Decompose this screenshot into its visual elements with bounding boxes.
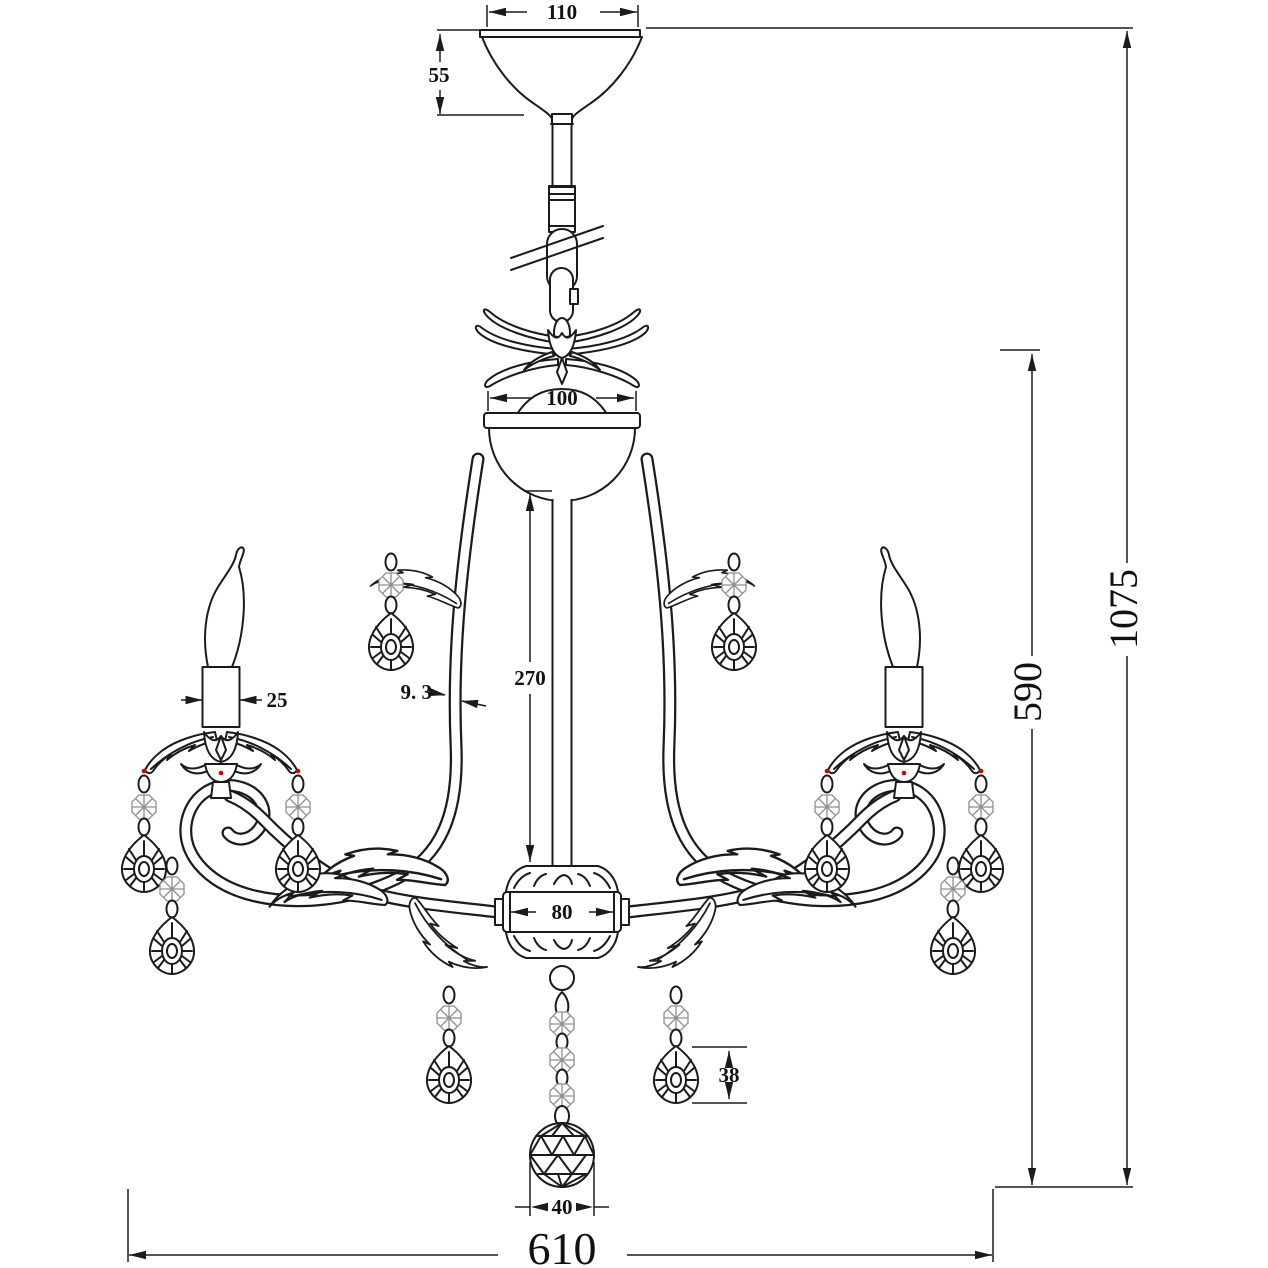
arm-assembly-right [628,459,1003,1103]
dim-label-hub-width: 80 [552,900,573,924]
chandelier-drawing: 110 55 100 270 9. 3 25 80 [0,0,1268,1268]
dim-arm-tube-diameter: 9. 3 [401,680,487,708]
dim-label-center-column-length: 270 [514,666,546,690]
dim-label-candle-sleeve-diameter: 25 [267,688,288,712]
dim-center-column-length: 270 [514,491,552,862]
bead-chain [550,1012,574,1126]
dim-canopy-width: 110 [487,0,638,27]
dim-label-overall-width: 610 [528,1223,597,1268]
dim-label-body-cap-width: 100 [546,386,578,410]
dim-label-canopy-height: 55 [429,63,450,87]
dim-label-body-height: 590 [1005,662,1050,722]
ceiling-canopy [480,30,642,124]
dim-drop-pendant-height: 38 [692,1047,747,1103]
dim-body-height: 590 [995,350,1133,1187]
dim-label-arm-tube-diameter: 9. 3 [401,680,433,704]
dim-body-cap-width: 100 [488,386,636,411]
crystal-ball [530,1123,594,1187]
suspension-chain [511,124,603,348]
hub-finial-ball [550,966,574,990]
technical-drawing-page: 110 55 100 270 9. 3 25 80 [0,0,1268,1268]
dim-label-overall-height: 1075 [1101,569,1146,649]
dim-label-bottom-ball-diameter: 40 [552,1195,573,1219]
dim-label-canopy-width: 110 [547,0,577,24]
dim-label-drop-pendant-height: 38 [719,1063,740,1087]
dome-bowl [489,428,635,501]
dome-band [484,413,640,428]
center-hub [495,866,629,1016]
